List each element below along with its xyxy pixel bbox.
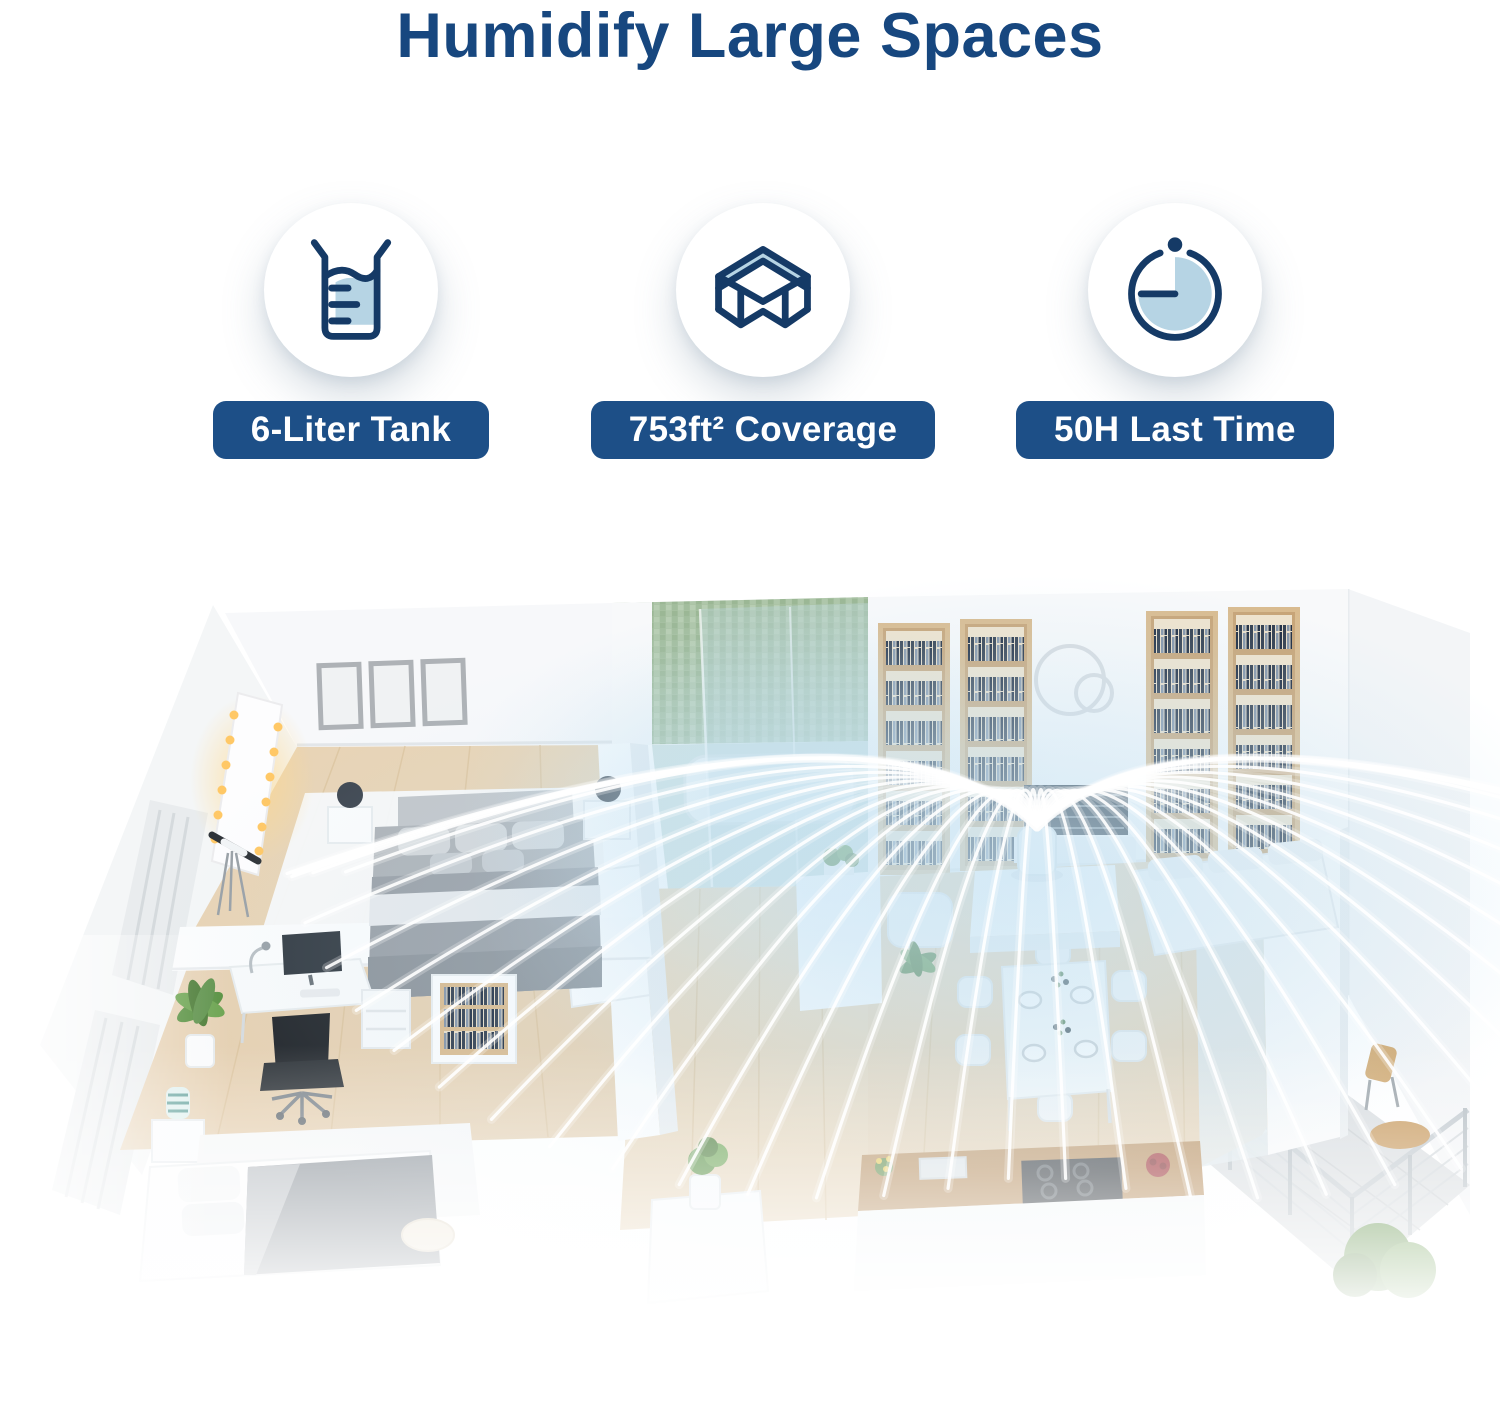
feature-badge-tank: 6-Liter Tank [213,401,490,459]
timer-glyph [1117,232,1233,348]
feature-badge-coverage: 753ft² Coverage [591,401,936,459]
beaker-tank-glyph [293,232,409,348]
apartment-illustration [0,575,1500,1380]
product-infographic: Humidify Large Spaces 6-Liter Tank [0,0,1500,1413]
timer-icon [1088,203,1262,377]
feature-badge-runtime: 50H Last Time [1016,401,1334,459]
feature-coverage: 753ft² Coverage [598,203,928,459]
room-coverage-glyph [705,232,821,348]
left-fade [0,935,230,1380]
feature-row: 6-Liter Tank 753ft² Coverage [13,203,1500,459]
feature-runtime: 50H Last Time [1010,203,1340,459]
beaker-tank-icon [264,203,438,377]
room-coverage-icon [676,203,850,377]
feature-tank: 6-Liter Tank [186,203,516,459]
page-title: Humidify Large Spaces [0,0,1500,72]
